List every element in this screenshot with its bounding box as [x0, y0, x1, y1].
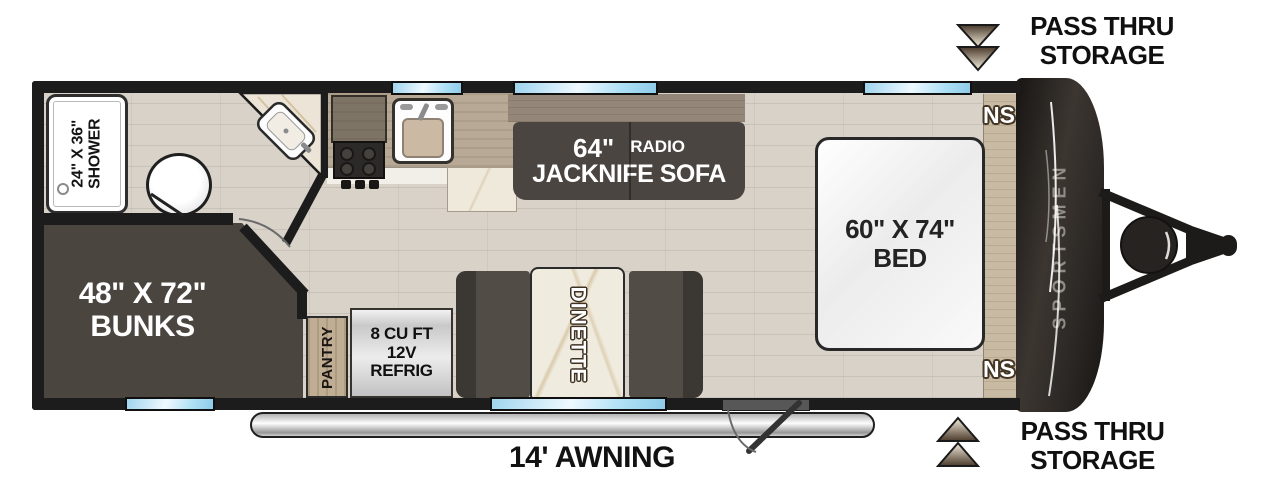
shower-label: 24" X 36" SHOWER — [70, 119, 104, 189]
brand-label: SPORTSMEN — [1050, 161, 1071, 329]
burner-icon — [362, 162, 376, 176]
nightstand-label-bottom: NS — [979, 356, 1019, 383]
sofa-size-label: 64" — [573, 135, 614, 161]
microwave-icon — [331, 95, 387, 143]
pass-thru-storage-label-bottom: PASS THRU STORAGE — [995, 417, 1190, 474]
dinette-table: DINETTE — [530, 267, 625, 403]
kitchen-sink-icon — [392, 98, 454, 164]
stove-icon — [333, 141, 385, 179]
stove-knob-icon — [355, 180, 365, 189]
rv-floorplan: 24" X 36" SHOWER 48" X 72" BUNKS 64" RAD… — [0, 0, 1267, 499]
window — [863, 81, 972, 95]
window — [490, 397, 667, 411]
pantry-label: PANTRY — [319, 326, 336, 389]
kitchen-counter-return — [447, 167, 517, 212]
bed-name-label: BED — [873, 244, 926, 273]
sofa-backrest — [508, 94, 745, 122]
awning-label: 14' AWNING — [462, 441, 722, 475]
bed-size-label: 60" X 74" — [845, 215, 955, 244]
nightstand-label-top: NS — [979, 102, 1019, 129]
entry-door — [722, 399, 810, 411]
bed: 60" X 74" BED — [815, 137, 985, 351]
wall-bathroom — [42, 213, 233, 225]
burner-icon — [340, 162, 354, 176]
wall-bath-sink — [318, 92, 328, 178]
hitch-frame-icon — [1100, 189, 1237, 301]
bench-backrest — [456, 271, 476, 398]
jacknife-sofa: 64" RADIO JACKNIFE SOFA — [513, 122, 745, 200]
stove-knob-icon — [369, 180, 379, 189]
shower-pan: 24" X 36" SHOWER — [46, 94, 128, 214]
bunks-name-label: BUNKS — [90, 311, 194, 343]
burner-icon — [340, 147, 354, 161]
pass-thru-storage-label-top: PASS THRU STORAGE — [1012, 12, 1192, 69]
window — [513, 81, 658, 95]
shower-drain-icon — [57, 183, 69, 195]
bunks-size-label: 48" X 72" — [79, 278, 206, 310]
front-cap: SPORTSMEN — [1016, 78, 1104, 412]
propane-tank-icon — [1121, 217, 1177, 273]
sink-bowl-icon — [402, 118, 444, 158]
sofa-cushion-divider — [629, 122, 631, 200]
bench-backrest — [683, 271, 703, 398]
refrig-label-line1: 8 CU FT — [370, 325, 432, 344]
wall-bunk-end — [297, 289, 307, 319]
refrigerator: 8 CU FT 12V REFRIG — [350, 308, 453, 398]
radio-label: RADIO — [630, 138, 685, 155]
dinette-bench-right — [629, 271, 703, 398]
arrow-up-icon — [938, 418, 978, 466]
bunks-area: 48" X 72" BUNKS — [42, 223, 303, 398]
stove-knob-icon — [341, 180, 351, 189]
faucet-handle-icon — [435, 104, 448, 110]
toilet-icon — [146, 153, 212, 217]
window — [125, 397, 215, 411]
window — [391, 81, 463, 95]
faucet-handle-icon — [400, 104, 413, 110]
refrig-label-line3: REFRIG — [370, 362, 432, 381]
awning-bar — [250, 412, 875, 438]
refrig-label-line2: 12V — [387, 344, 416, 363]
arrow-down-icon — [958, 25, 998, 70]
dinette-bench-left — [456, 271, 530, 398]
burner-icon — [362, 147, 376, 161]
pantry-cabinet: PANTRY — [306, 316, 348, 398]
dinette-label: DINETTE — [566, 287, 590, 384]
wall-rear — [32, 81, 44, 410]
